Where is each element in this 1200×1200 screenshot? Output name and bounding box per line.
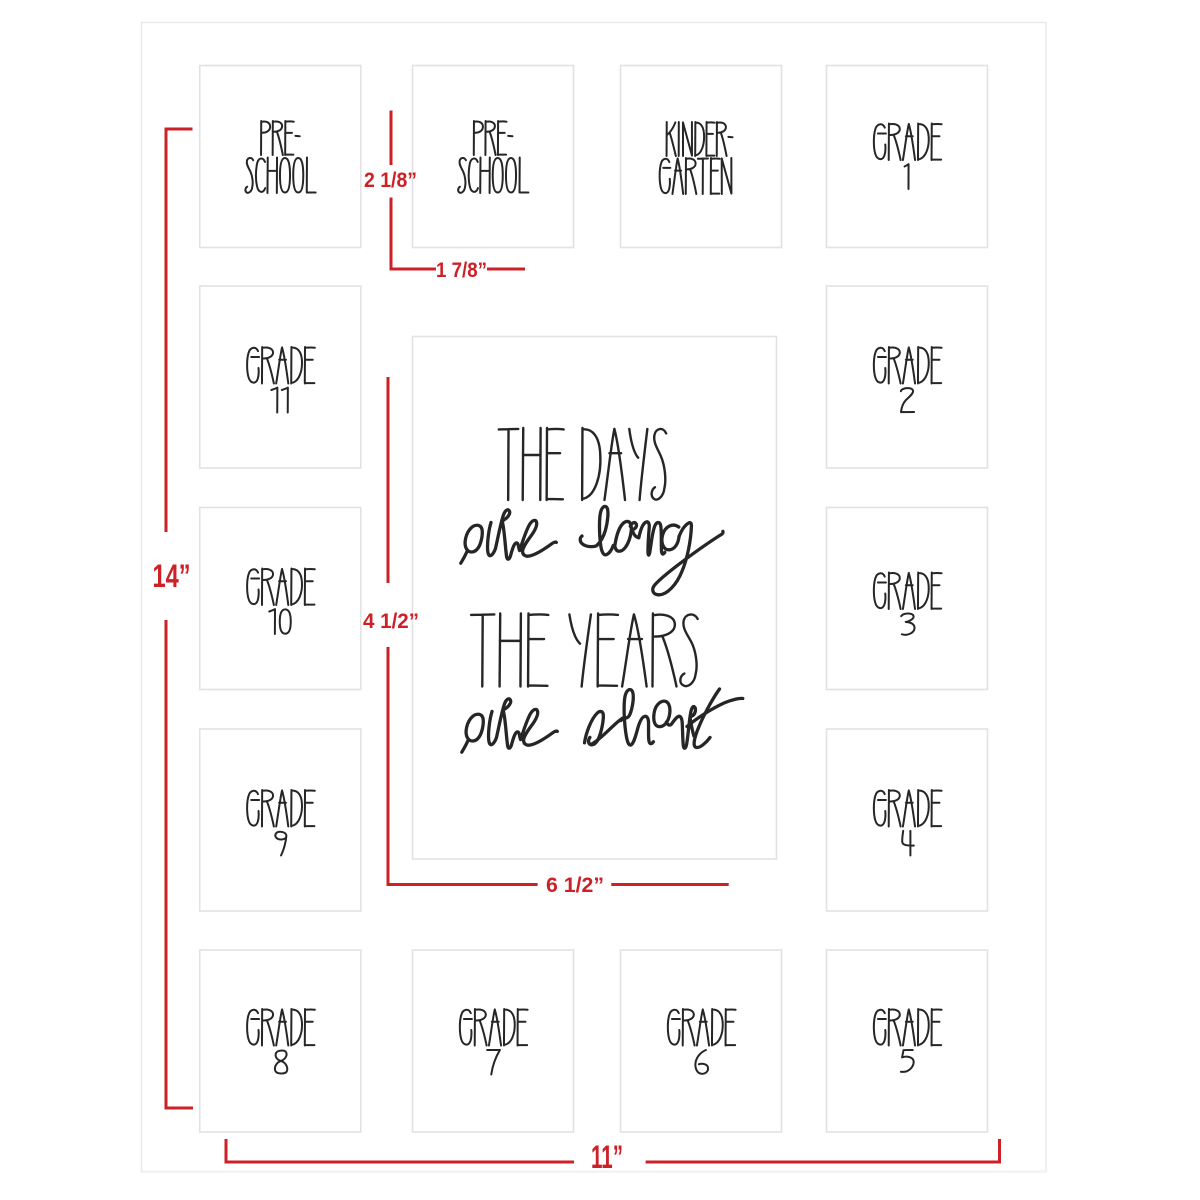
svg-text:2 1/8”: 2 1/8” [364, 169, 417, 192]
svg-text:4 1/2”: 4 1/2” [363, 610, 419, 633]
svg-text:6 1/2”: 6 1/2” [546, 874, 604, 897]
svg-text:14”: 14” [153, 558, 191, 594]
svg-text:11”: 11” [591, 1139, 623, 1175]
svg-text:1 7/8”: 1 7/8” [436, 259, 487, 282]
